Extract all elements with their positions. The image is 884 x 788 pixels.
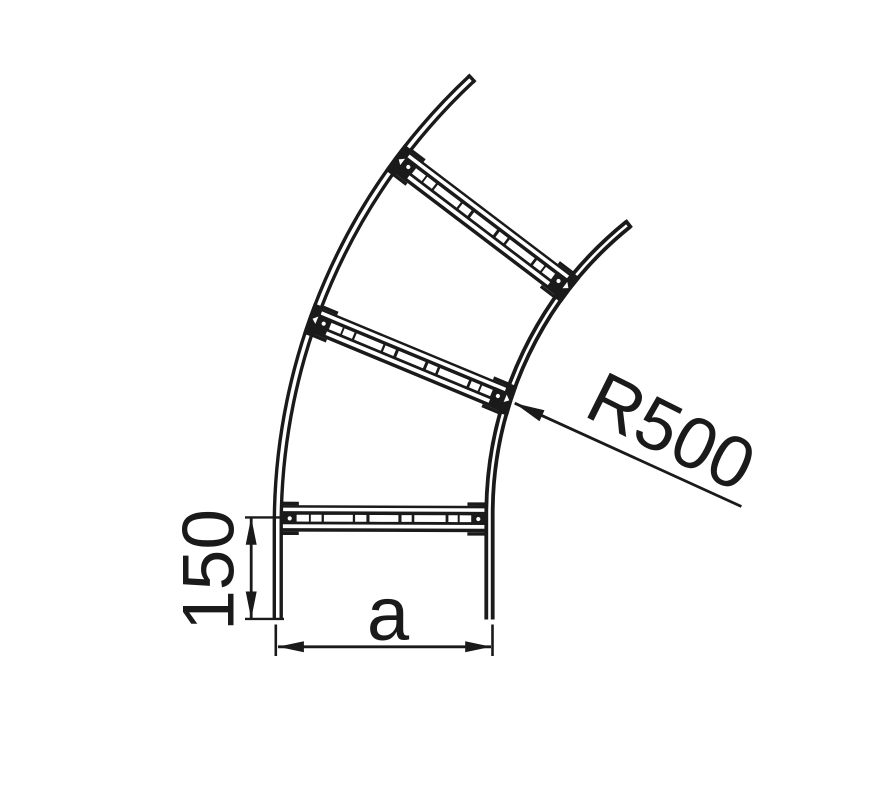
svg-text:a: a (367, 572, 410, 657)
svg-text:150: 150 (168, 509, 249, 631)
